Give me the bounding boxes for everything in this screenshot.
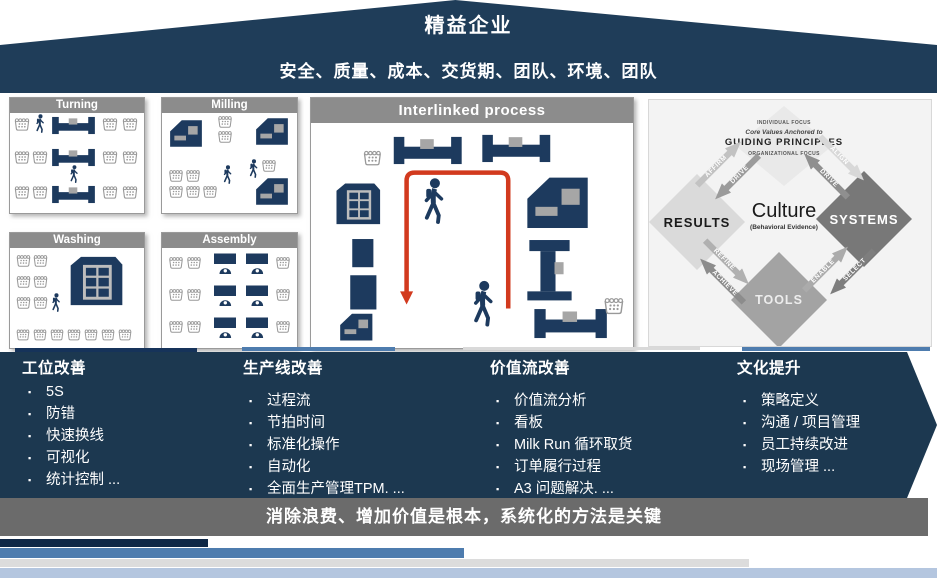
lathe-machine-icon xyxy=(52,149,95,166)
parts-basket-icon xyxy=(277,258,289,269)
parts-basket-icon xyxy=(219,117,231,128)
column-workstation-improvement: 工位改善 5S防错快速换线可视化统计控制 ... xyxy=(22,356,120,491)
list-item: 防错 xyxy=(22,403,120,425)
parts-basket-icon xyxy=(17,330,29,340)
tools-label: TOOLS xyxy=(755,293,803,307)
assembly-bench-icon xyxy=(246,318,268,339)
accent-bar-steel-right xyxy=(742,347,930,351)
parts-basket-icon xyxy=(188,290,200,301)
bottom-bar-steel xyxy=(0,548,464,558)
assembly-bench-icon xyxy=(214,254,236,275)
parts-basket-icon xyxy=(188,258,200,269)
list-item: 现场管理 ... xyxy=(737,456,860,478)
accent-bar-steel-left xyxy=(242,347,395,351)
column-title: 工位改善 xyxy=(22,356,120,378)
list-item: 标准化操作 xyxy=(243,434,405,456)
walking-worker-icon xyxy=(37,114,43,132)
culture-model-diagram: RESULTS SYSTEMS TOOLS INDIVIDUAL FOCUS C… xyxy=(648,99,932,347)
assembly-layout-graphic xyxy=(162,248,297,346)
column-title: 价值流改善 xyxy=(490,356,632,378)
panel-turning: Turning xyxy=(9,97,145,214)
parts-basket-icon xyxy=(123,152,136,163)
parts-basket-icon xyxy=(103,187,116,198)
parts-basket-icon xyxy=(34,277,46,288)
lathe-machine-icon xyxy=(52,117,95,134)
drill-machine-icon xyxy=(527,240,571,300)
parts-basket-icon xyxy=(365,151,381,164)
parts-basket-icon xyxy=(85,330,97,340)
milling-machine-icon xyxy=(527,178,587,228)
column-title: 文化提升 xyxy=(737,356,860,378)
culture-center-text: Culture (Behavioral Evidence) xyxy=(724,200,844,231)
parts-basket-icon xyxy=(17,277,29,288)
column-line-improvement: 生产线改善 过程流节拍时间标准化操作自动化全面生产管理TPM. ... xyxy=(243,356,405,500)
parts-basket-icon xyxy=(15,119,28,130)
panel-assembly: Assembly xyxy=(161,232,298,349)
washing-layout-graphic xyxy=(10,248,144,346)
parts-basket-icon xyxy=(15,152,28,163)
parts-basket-icon xyxy=(51,330,63,340)
panel-turning-title: Turning xyxy=(10,98,144,113)
machine-block-icon xyxy=(350,275,376,309)
milling-machine-icon xyxy=(256,118,288,144)
parts-basket-icon xyxy=(33,152,46,163)
panel-interlinked-process: Interlinked process xyxy=(310,97,634,349)
parts-basket-icon xyxy=(123,119,136,130)
list-item: A3 问题解决. ... xyxy=(490,478,632,500)
parts-basket-icon xyxy=(34,330,46,340)
culture-label: Culture xyxy=(724,200,844,223)
bottom-bar-gray xyxy=(0,559,749,567)
parts-basket-icon xyxy=(68,330,80,340)
washing-machine-icon xyxy=(336,183,380,224)
walking-worker-icon xyxy=(476,281,491,325)
list-item: 快速换线 xyxy=(22,425,120,447)
parts-basket-icon xyxy=(187,187,199,198)
lathe-machine-icon xyxy=(482,135,550,162)
top-banner: 精益企业 安全、质量、成本、交货期、团队、环境、团队 xyxy=(0,0,937,93)
list-item: 全面生产管理TPM. ... xyxy=(243,478,405,500)
assembly-bench-icon xyxy=(214,286,236,307)
results-label: RESULTS xyxy=(664,215,731,230)
assembly-bench-icon xyxy=(246,286,268,307)
list-item: 过程流 xyxy=(243,390,405,412)
parts-basket-icon xyxy=(170,187,182,198)
parts-basket-icon xyxy=(605,299,622,314)
parts-basket-icon xyxy=(15,187,28,198)
bullet-list: 过程流节拍时间标准化操作自动化全面生产管理TPM. ... xyxy=(243,390,405,500)
list-item: 员工持续改进 xyxy=(737,434,860,456)
milling-layout-graphic xyxy=(162,113,297,211)
parts-basket-icon xyxy=(103,152,116,163)
walking-worker-icon xyxy=(426,178,441,222)
list-item: 看板 xyxy=(490,412,632,434)
parts-basket-icon xyxy=(123,187,136,198)
parts-basket-icon xyxy=(219,132,231,143)
parts-basket-icon xyxy=(187,171,199,182)
panel-milling-title: Milling xyxy=(162,98,297,113)
parts-basket-icon xyxy=(119,330,131,340)
bottom-bar-navy xyxy=(0,539,208,547)
improvement-band: 工位改善 5S防错快速换线可视化统计控制 ... 生产线改善 过程流节拍时间标准… xyxy=(0,352,937,498)
list-item: 统计控制 ... xyxy=(22,469,120,491)
accent-bar-navy xyxy=(15,348,197,352)
column-culture-improvement: 文化提升 策略定义沟通 / 项目管理员工持续改进现场管理 ... xyxy=(737,356,860,478)
list-item: 沟通 / 项目管理 xyxy=(737,412,860,434)
lean-enterprise-slide: 精益企业 安全、质量、成本、交货期、团队、环境、团队 Turning xyxy=(0,0,937,579)
milling-machine-icon xyxy=(340,314,372,341)
drive-arrow-left: DRIVE xyxy=(710,151,763,204)
list-item: 价值流分析 xyxy=(490,390,632,412)
key-message-band: 消除浪费、增加价值是根本，系统化的方法是关键 xyxy=(0,498,928,536)
bullet-list: 价值流分析看板Milk Run 循环取货订单履行过程A3 问题解决. ... xyxy=(490,390,632,500)
lathe-machine-icon xyxy=(394,137,462,164)
washing-machine-icon xyxy=(71,257,123,305)
lathe-machine-icon xyxy=(52,186,95,203)
walking-worker-icon xyxy=(71,165,77,182)
milk-run-route-arrow xyxy=(407,173,509,309)
behavioral-evidence-label: (Behavioral Evidence) xyxy=(724,224,844,231)
bullet-list: 策略定义沟通 / 项目管理员工持续改进现场管理 ... xyxy=(737,390,860,478)
list-item: 自动化 xyxy=(243,456,405,478)
panel-interlinked-title: Interlinked process xyxy=(311,98,633,123)
parts-basket-icon xyxy=(170,290,182,301)
parts-basket-icon xyxy=(170,258,182,269)
walking-worker-icon xyxy=(250,159,256,177)
list-item: Milk Run 循环取货 xyxy=(490,434,632,456)
turning-layout-graphic xyxy=(10,113,144,211)
parts-basket-icon xyxy=(263,161,275,172)
parts-basket-icon xyxy=(34,298,46,309)
parts-basket-icon xyxy=(103,119,116,130)
slide-subtitle: 安全、质量、成本、交货期、团队、环境、团队 xyxy=(0,57,937,82)
interlinked-cell-graphic xyxy=(311,123,633,345)
parts-basket-icon xyxy=(188,322,200,333)
walking-worker-icon xyxy=(53,293,59,311)
guiding-principles-label: GUIDING PRINCIPLES xyxy=(704,137,864,148)
panel-washing: Washing xyxy=(9,232,145,349)
parts-basket-icon xyxy=(102,330,114,340)
list-item: 5S xyxy=(22,381,120,403)
parts-basket-icon xyxy=(277,322,289,333)
lathe-machine-icon xyxy=(534,309,606,338)
panel-assembly-title: Assembly xyxy=(162,233,297,248)
panel-milling: Milling xyxy=(161,97,298,214)
parts-basket-icon xyxy=(33,187,46,198)
route-arrowhead-icon xyxy=(400,291,413,304)
assembly-bench-icon xyxy=(214,318,236,339)
machine-block-icon xyxy=(352,239,373,267)
parts-basket-icon xyxy=(17,298,29,309)
core-values-label: Core Values Anchored to xyxy=(704,129,864,136)
column-value-stream-improvement: 价值流改善 价值流分析看板Milk Run 循环取货订单履行过程A3 问题解决.… xyxy=(490,356,632,500)
individual-focus-label: INDIVIDUAL FOCUS xyxy=(704,120,864,126)
list-item: 可视化 xyxy=(22,447,120,469)
parts-basket-icon xyxy=(170,171,182,182)
list-item: 订单履行过程 xyxy=(490,456,632,478)
parts-basket-icon xyxy=(204,187,216,198)
accent-bar-gray xyxy=(463,347,700,350)
panel-washing-title: Washing xyxy=(10,233,144,248)
column-title: 生产线改善 xyxy=(243,356,405,378)
milling-machine-icon xyxy=(170,120,202,146)
parts-basket-icon xyxy=(277,290,289,301)
list-item: 节拍时间 xyxy=(243,412,405,434)
parts-basket-icon xyxy=(17,256,29,267)
assembly-bench-icon xyxy=(246,254,268,275)
list-item: 策略定义 xyxy=(737,390,860,412)
slide-title: 精益企业 xyxy=(0,9,937,38)
milling-machine-icon xyxy=(256,178,288,204)
bullet-list: 5S防错快速换线可视化统计控制 ... xyxy=(22,381,120,491)
bottom-bar-light-blue xyxy=(0,568,937,578)
parts-basket-icon xyxy=(170,322,182,333)
walking-worker-icon xyxy=(224,165,230,183)
parts-basket-icon xyxy=(34,256,46,267)
